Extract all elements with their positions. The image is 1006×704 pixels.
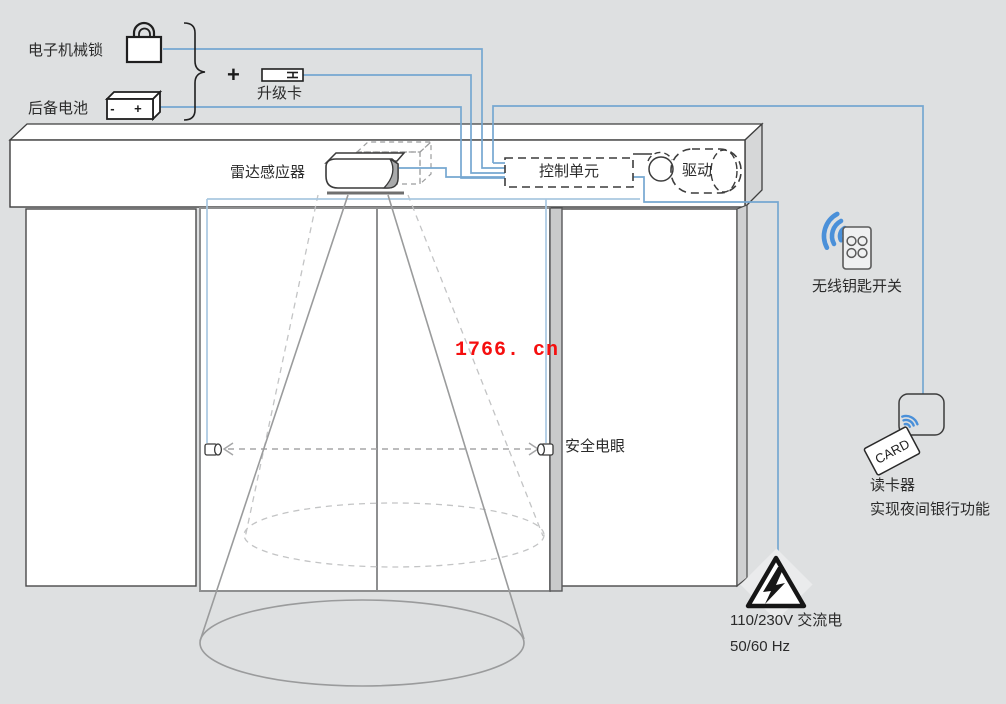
backup-battery-label: 后备电池 bbox=[28, 100, 88, 119]
battery-terminals-label: - + bbox=[109, 99, 151, 119]
right-door-edge-profile bbox=[550, 208, 562, 591]
power-voltage-label: 110/230V 交流电 bbox=[730, 612, 842, 631]
right-sliding-door bbox=[377, 208, 550, 591]
card-reader-function-label: 实现夜间银行功能 bbox=[870, 501, 990, 520]
electronic-lock-label: 电子机械锁 bbox=[28, 42, 103, 61]
diagram-canvas: CARD 电子机械锁 后备电池 - + + 升级卡 雷达感应器 控制单元 驱动 … bbox=[0, 0, 1006, 704]
left-fixed-panel bbox=[26, 209, 196, 586]
radar-sensor-icon bbox=[326, 153, 404, 193]
power-frequency-label: 50/60 Hz bbox=[730, 638, 790, 657]
remote-control-icon bbox=[843, 227, 871, 269]
padlock-icon bbox=[127, 23, 161, 62]
card-reader-label: 读卡器 bbox=[870, 477, 915, 496]
photocell-left-icon bbox=[205, 444, 221, 455]
brace-icon bbox=[184, 23, 205, 120]
upgrade-card-icon bbox=[262, 69, 303, 81]
control-unit-label: 控制单元 bbox=[505, 158, 633, 187]
right-panel-side-face bbox=[737, 205, 747, 586]
safety-photocell-label: 安全电眼 bbox=[565, 438, 625, 457]
drive-label: 驱动 bbox=[671, 149, 723, 193]
drive-pulley-icon bbox=[649, 157, 673, 181]
header-top-face bbox=[10, 124, 762, 140]
wireless-key-switch-label: 无线钥匙开关 bbox=[812, 278, 902, 297]
floor-detection-ellipse bbox=[200, 600, 524, 686]
photocell-right-icon bbox=[538, 444, 553, 455]
radar-sensor-label: 雷达感应器 bbox=[230, 164, 305, 183]
left-sliding-door bbox=[200, 208, 377, 591]
right-fixed-panel bbox=[561, 209, 737, 586]
watermark-text: 1766. cn bbox=[455, 338, 559, 363]
plus-sign: + bbox=[227, 61, 240, 89]
power-warning-icon bbox=[740, 548, 812, 620]
upgrade-card-label: 升级卡 bbox=[257, 85, 302, 104]
